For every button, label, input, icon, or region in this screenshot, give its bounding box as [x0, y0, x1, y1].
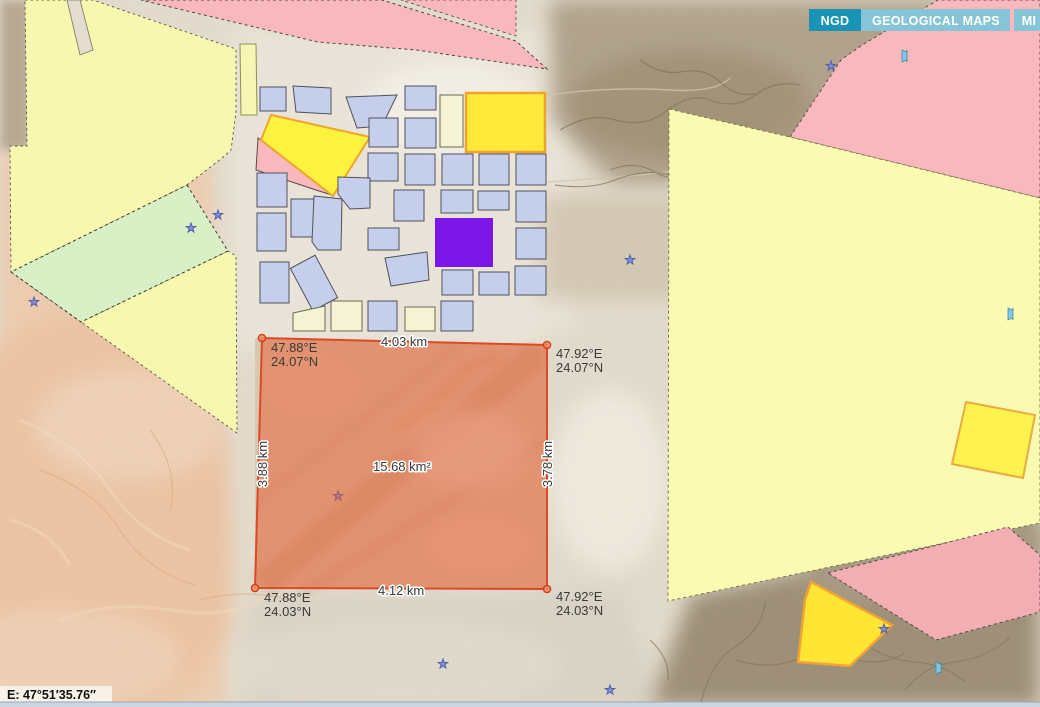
svg-text:24.07°N: 24.07°N [556, 360, 603, 375]
svg-text:4.12 km: 4.12 km [378, 583, 424, 598]
svg-text:GEOLOGICAL MAPS: GEOLOGICAL MAPS [872, 14, 1000, 28]
svg-text:24.07°N: 24.07°N [271, 354, 318, 369]
svg-text:47.88°E: 47.88°E [271, 340, 318, 355]
svg-text:47.88°E: 47.88°E [264, 590, 311, 605]
svg-text:E: 47°51′35.76″: E: 47°51′35.76″ [7, 688, 96, 702]
svg-text:NGD: NGD [821, 14, 850, 28]
svg-text:47.92°E: 47.92°E [556, 589, 603, 604]
svg-text:24.03°N: 24.03°N [264, 604, 311, 619]
svg-text:15.68 km²: 15.68 km² [373, 459, 431, 474]
svg-text:3.78 km: 3.78 km [540, 441, 555, 487]
svg-text:24.03°N: 24.03°N [556, 603, 603, 618]
svg-text:4.03 km: 4.03 km [381, 334, 427, 349]
svg-text:3.88 km: 3.88 km [255, 441, 270, 487]
svg-text:47.92°E: 47.92°E [556, 346, 603, 361]
svg-text:MI: MI [1022, 14, 1037, 28]
